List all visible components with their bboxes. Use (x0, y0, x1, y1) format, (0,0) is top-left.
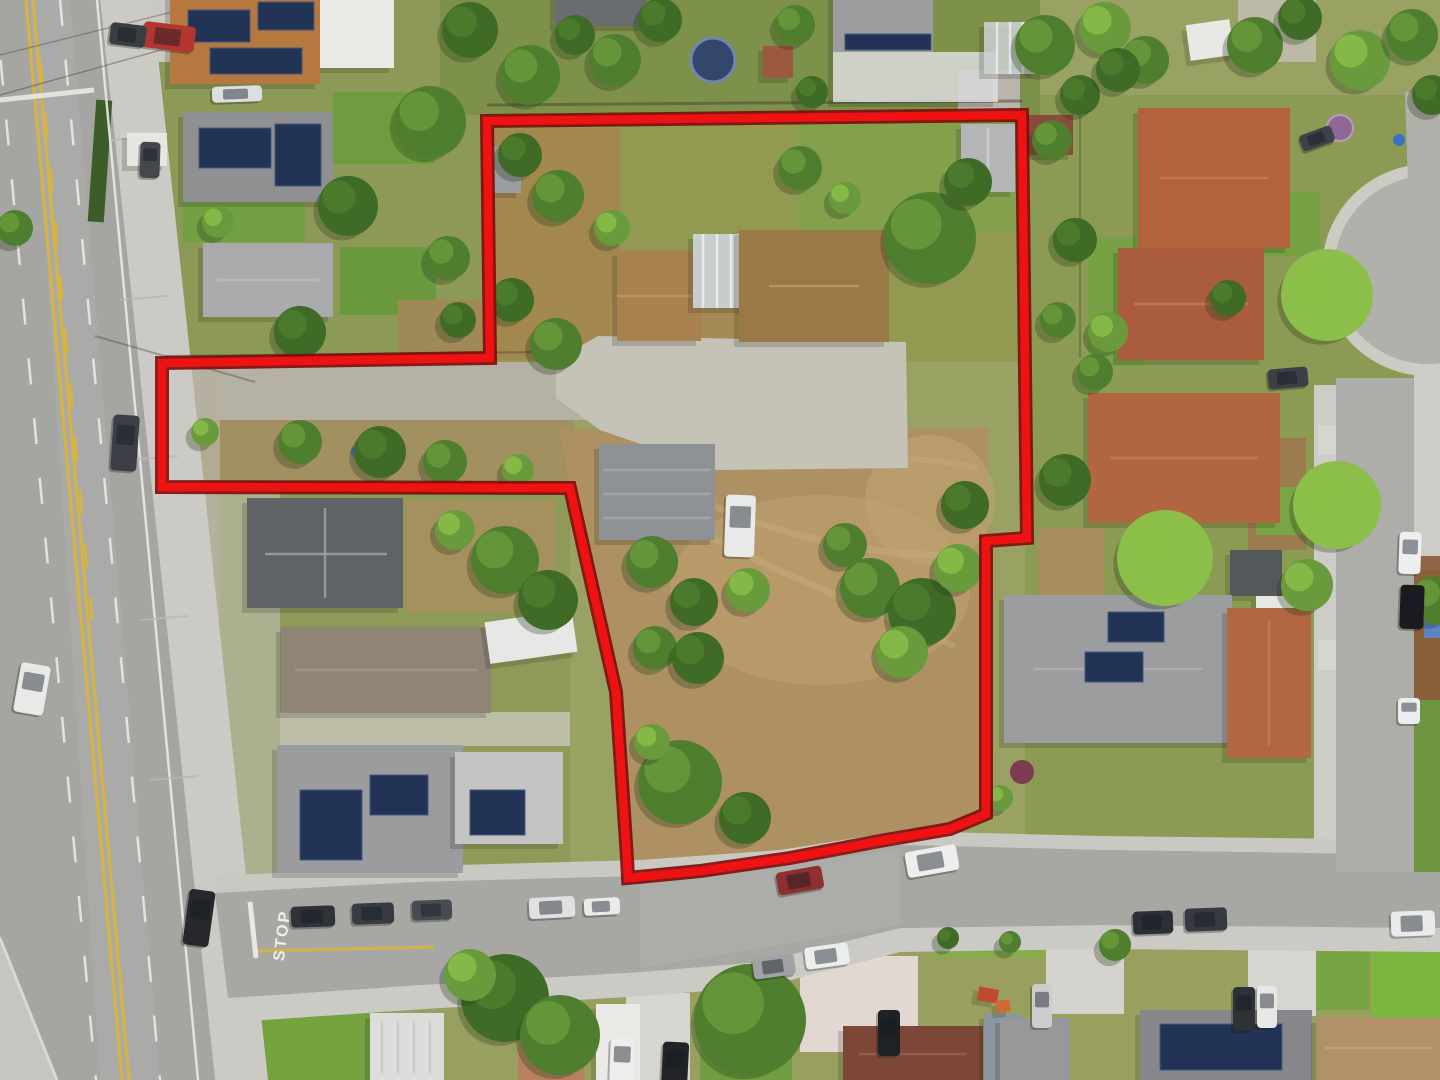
car (350, 902, 395, 927)
car (1131, 910, 1174, 936)
car (1255, 986, 1277, 1030)
car (289, 905, 336, 930)
car (582, 897, 621, 918)
house-terracotta (1222, 608, 1311, 763)
house-solar (999, 595, 1232, 748)
driveway-apron (1318, 425, 1336, 455)
garage (311, 0, 394, 73)
house-terracotta (1133, 108, 1290, 253)
car (107, 22, 148, 50)
car (1231, 987, 1255, 1033)
car (1397, 585, 1425, 632)
purple-bush (1010, 760, 1034, 784)
shed (1225, 550, 1282, 601)
house (242, 498, 403, 613)
sidewalk (1314, 385, 1336, 872)
backyard (1414, 700, 1440, 872)
car (1396, 532, 1422, 577)
shed (758, 46, 793, 83)
car (722, 494, 756, 559)
aerial-photo: STOP (0, 0, 1440, 1080)
car (1030, 984, 1052, 1030)
house (1311, 1018, 1440, 1080)
house-solar (1135, 1010, 1312, 1080)
parcel-house (612, 251, 701, 346)
house (838, 1026, 983, 1080)
car (659, 1041, 690, 1080)
car (1183, 907, 1228, 934)
car (876, 1010, 900, 1058)
barn (594, 444, 715, 545)
car (607, 1038, 635, 1080)
patio-cover (828, 52, 998, 107)
driveway-apron (1318, 640, 1336, 670)
car (1389, 910, 1436, 939)
house-terracotta (1083, 393, 1280, 528)
aerial-photo-canvas: STOP (0, 0, 1440, 1080)
turf-lawn (1372, 946, 1440, 1018)
parcel-main-house (734, 230, 889, 347)
car (410, 899, 453, 922)
car (526, 896, 575, 921)
car (1265, 366, 1309, 392)
car (137, 142, 160, 181)
house-solar (272, 745, 463, 878)
bin (1393, 134, 1405, 146)
car (108, 414, 140, 474)
house (276, 627, 491, 718)
carport (365, 1013, 444, 1080)
house-solar (178, 112, 333, 207)
house (828, 0, 933, 57)
car (210, 85, 263, 105)
scene-layer (0, 0, 1440, 1080)
house-solar (450, 752, 563, 849)
car (1396, 698, 1420, 726)
